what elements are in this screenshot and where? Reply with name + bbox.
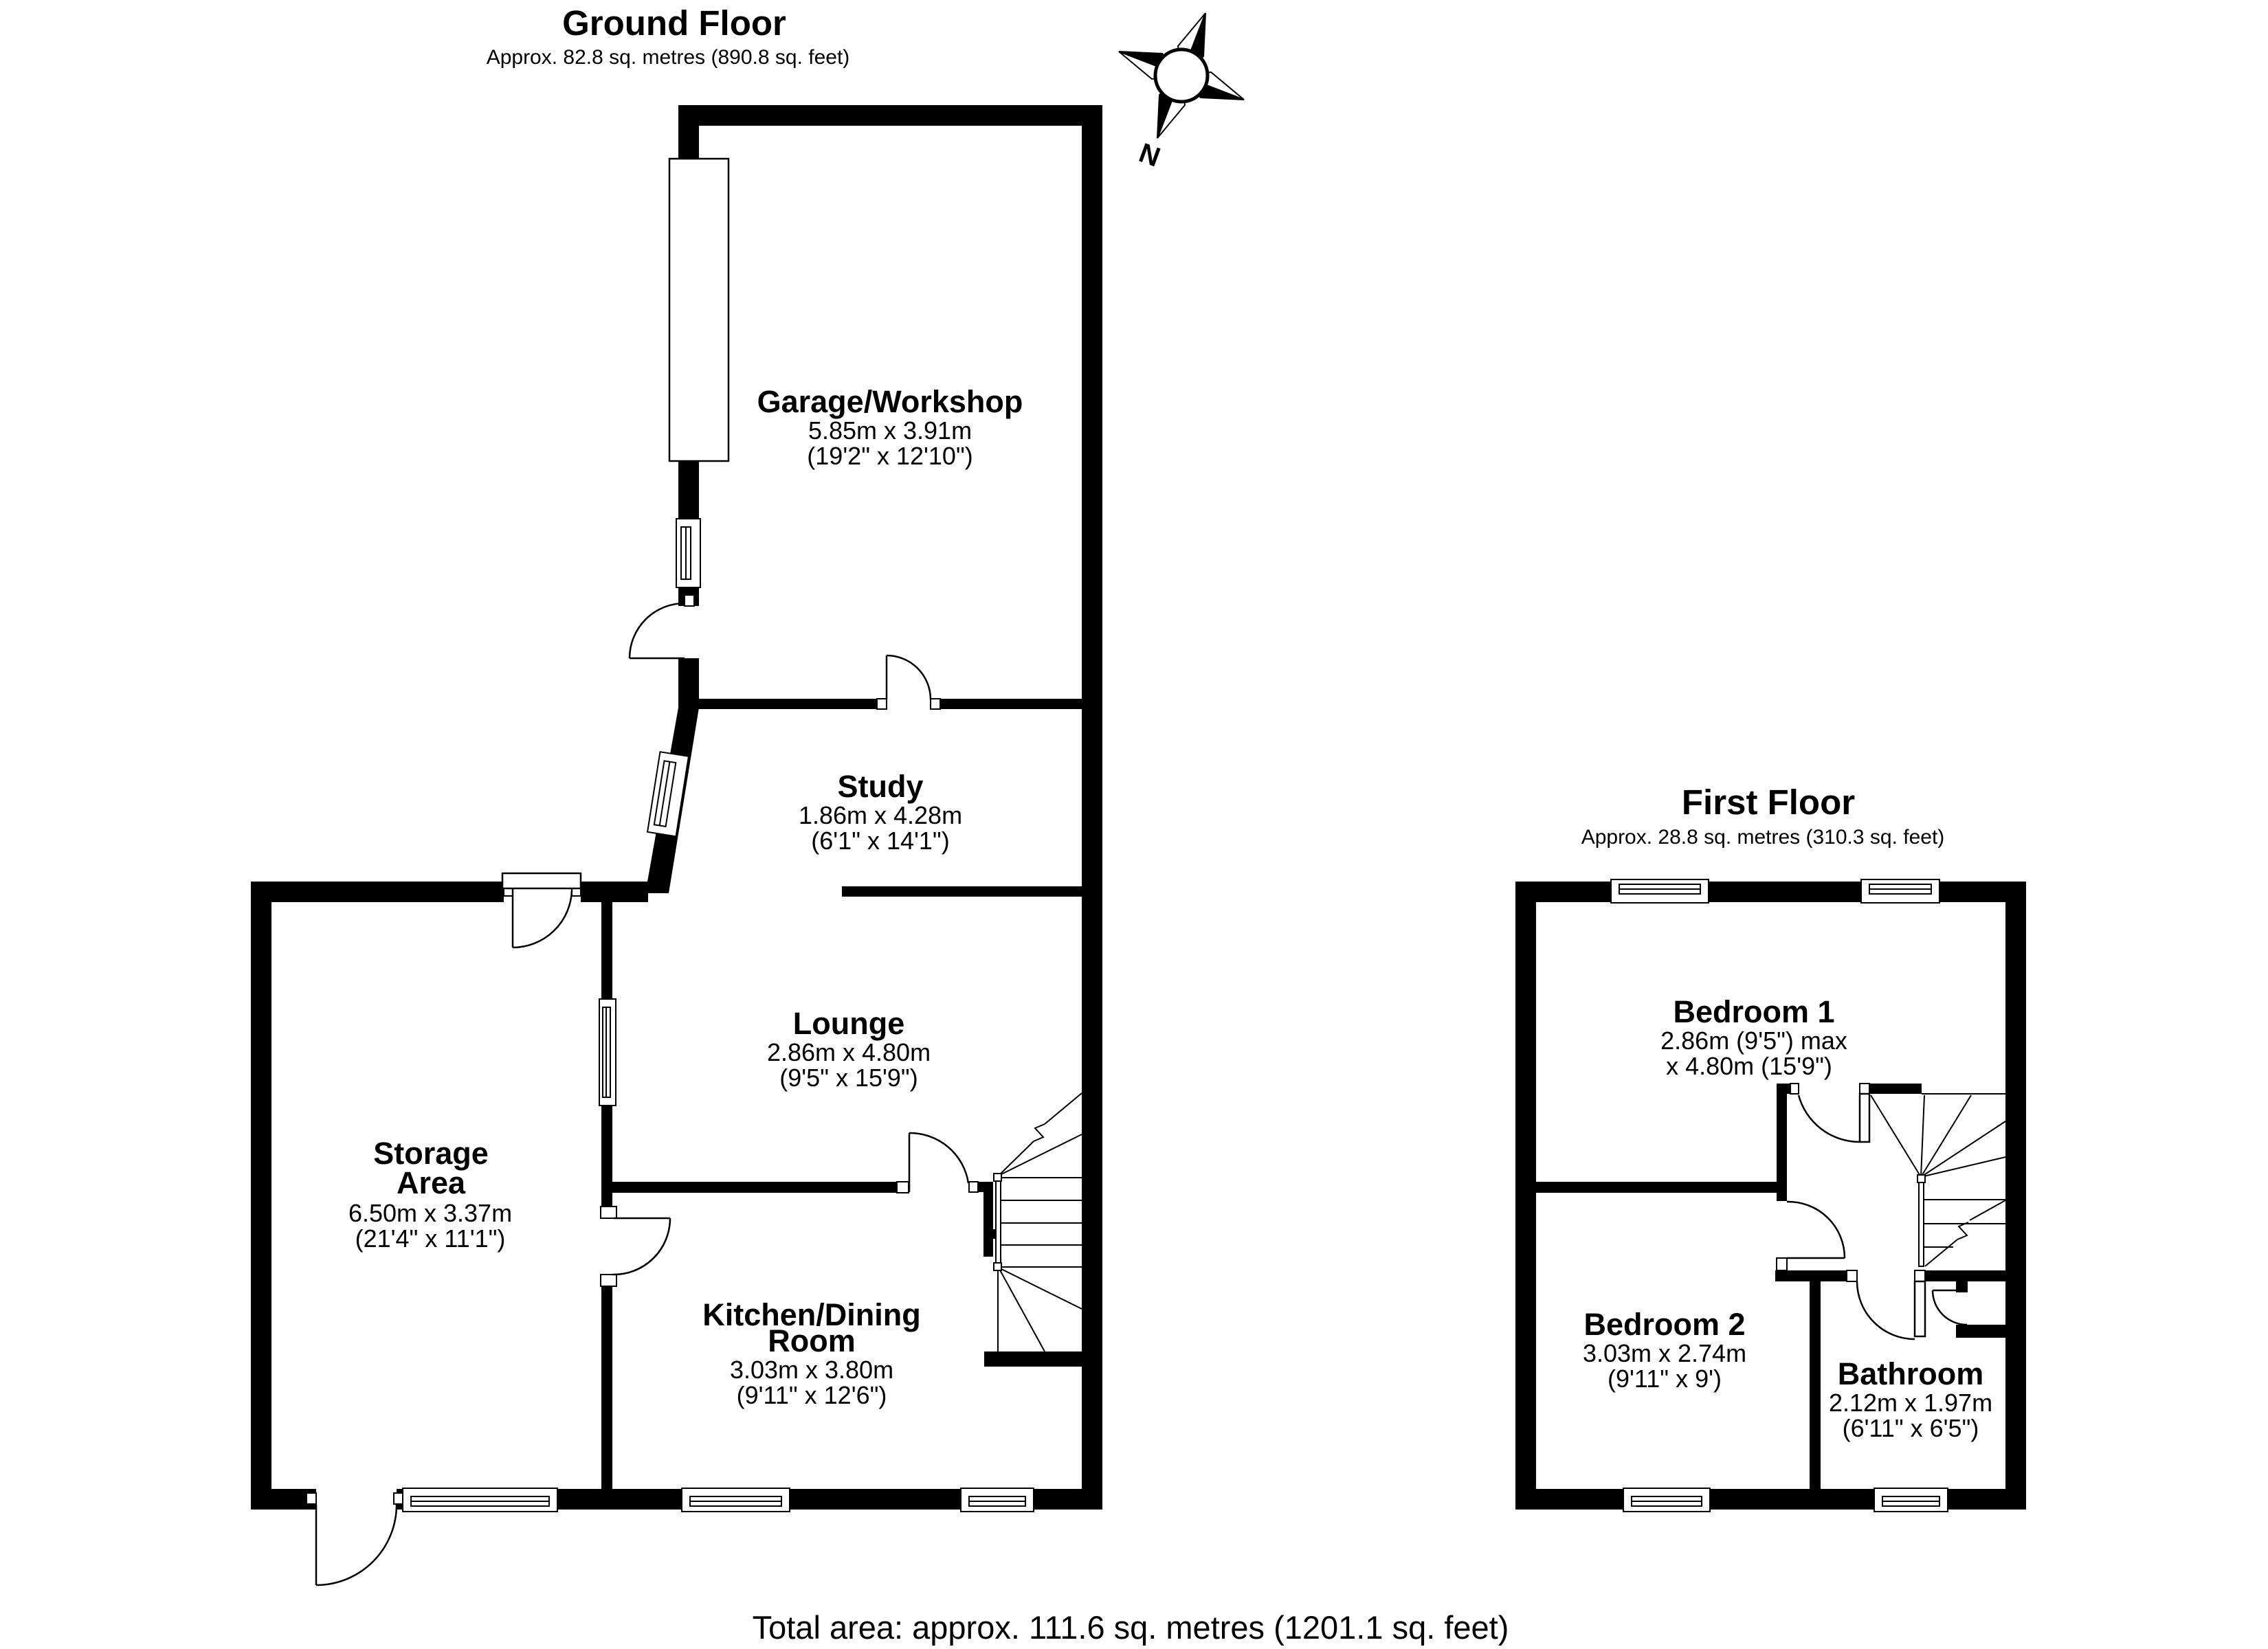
svg-text:Area: Area — [397, 1165, 466, 1200]
svg-text:1.86m x 4.28m: 1.86m x 4.28m — [799, 801, 962, 829]
svg-text:Bedroom 1: Bedroom 1 — [1673, 994, 1834, 1029]
svg-text:Ground Floor: Ground Floor — [562, 3, 786, 43]
svg-text:2.86m x 4.80m: 2.86m x 4.80m — [767, 1038, 931, 1066]
svg-text:(9'11" x 9'): (9'11" x 9') — [1608, 1365, 1722, 1393]
svg-text:(9'5" x 15'9"): (9'5" x 15'9") — [779, 1064, 918, 1092]
svg-text:Lounge: Lounge — [793, 1006, 904, 1041]
svg-text:2.12m x 1.97m: 2.12m x 1.97m — [1829, 1389, 1992, 1417]
svg-text:Total area: approx. 111.6 sq.: Total area: approx. 111.6 sq. metres (12… — [753, 1609, 1509, 1646]
svg-text:(9'11" x 12'6"): (9'11" x 12'6") — [737, 1381, 887, 1409]
svg-text:(6'11" x 6'5"): (6'11" x 6'5") — [1843, 1414, 1979, 1442]
svg-text:First Floor: First Floor — [1682, 783, 1855, 822]
svg-text:(6'1" x 14'1"): (6'1" x 14'1") — [811, 827, 949, 855]
svg-text:3.03m x 2.74m: 3.03m x 2.74m — [1583, 1339, 1746, 1367]
svg-text:(21'4" x 11'1"): (21'4" x 11'1") — [355, 1224, 506, 1253]
svg-text:x 4.80m (15'9"): x 4.80m (15'9") — [1666, 1052, 1832, 1080]
svg-text:Approx. 28.8 sq. metres (310.3: Approx. 28.8 sq. metres (310.3 sq. feet) — [1581, 826, 1945, 849]
svg-text:(19'2" x 12'10"): (19'2" x 12'10") — [807, 442, 972, 470]
svg-text:Study: Study — [837, 769, 923, 804]
svg-text:Room: Room — [768, 1323, 856, 1358]
svg-text:3.03m x 3.80m: 3.03m x 3.80m — [730, 1356, 893, 1384]
svg-text:Garage/Workshop: Garage/Workshop — [757, 384, 1023, 419]
svg-text:Bedroom 2: Bedroom 2 — [1583, 1307, 1745, 1342]
svg-text:5.85m x 3.91m: 5.85m x 3.91m — [808, 416, 972, 445]
svg-text:6.50m x 3.37m: 6.50m x 3.37m — [348, 1199, 512, 1227]
svg-text:Bathroom: Bathroom — [1838, 1356, 1984, 1391]
svg-text:2.86m (9'5") max: 2.86m (9'5") max — [1660, 1027, 1847, 1055]
svg-text:Approx. 82.8 sq. metres (890.8: Approx. 82.8 sq. metres (890.8 sq. feet) — [487, 46, 850, 69]
